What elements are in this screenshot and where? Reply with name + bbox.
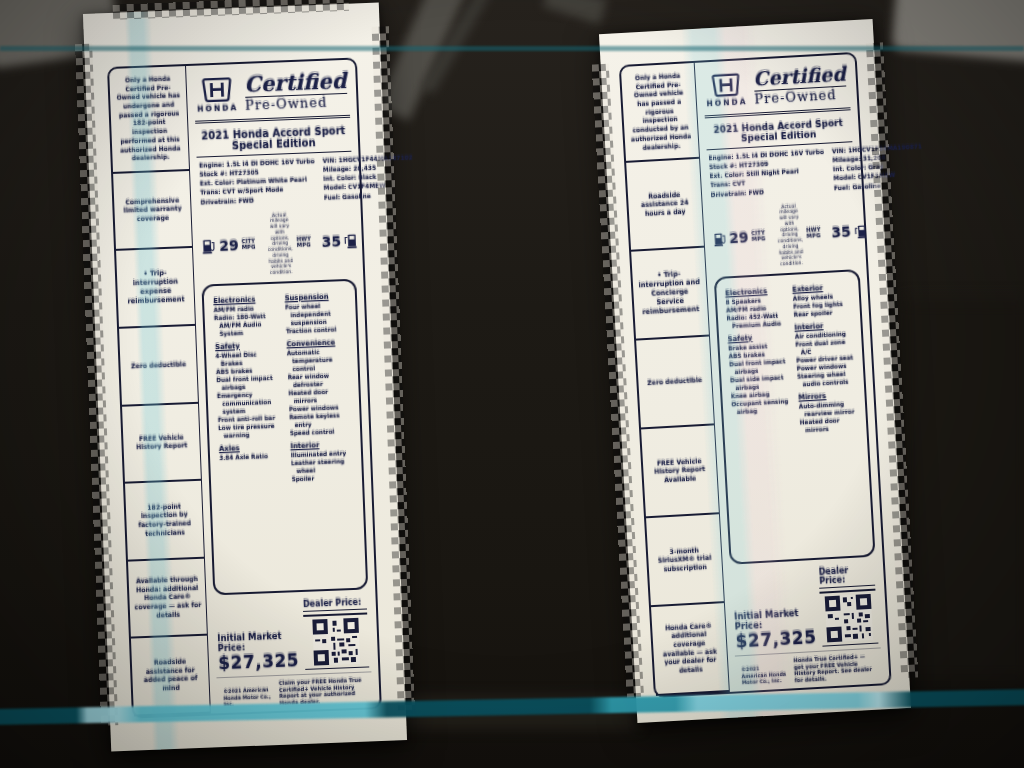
rule-line — [303, 612, 367, 616]
vehicle-info-right: VIN: 1HGCV1F44MA187102Mileage: 28,435Int… — [322, 153, 414, 202]
market-price-value: $27,325 — [218, 650, 300, 673]
hwy-mpg-label: HWY MPG — [806, 227, 829, 240]
desk-streak — [900, 300, 1024, 680]
window-sticker-left: Only a Honda Certified Pre-Owned vehicle… — [83, 3, 407, 752]
benefit-item: 182-point inspection by factory-trained … — [125, 481, 204, 561]
features-column-2: ExteriorAlloy wheelsFront fog lightsRear… — [792, 278, 864, 551]
cable-shadow — [542, 0, 607, 25]
benefit-item: • Trip-interruption expense reimbursemen… — [116, 248, 195, 328]
sticker-main-column: HONDA Certified Pre-Owned 2021 Honda Acc… — [694, 54, 889, 692]
benefit-item: Available through Honda: additional Hond… — [128, 559, 207, 639]
sticker-footer: ©2021 American Honda Motor Co., Inc. Hon… — [734, 647, 882, 691]
footer-claim-text: Honda True Certified+ — get your FREE Ve… — [793, 653, 876, 684]
certified-note: Only a Honda Certified Pre-Owned vehicle… — [621, 63, 699, 163]
vehicle-info-left: Engine: 1.5L I4 DI DOHC 16V TurboStock #… — [199, 157, 316, 207]
epa-fuel-economy: 29 CITY MPG Actual mileage will vary wit… — [709, 197, 859, 277]
benefit-item: FREE Vehicle History Report Available — [641, 425, 718, 518]
benefit-item: Zero deductible — [119, 326, 198, 406]
dealer-price-label: Dealer Price: — [303, 597, 367, 611]
feature-item: 3.84 Axle Ratio — [219, 452, 281, 462]
rule-line — [823, 642, 879, 647]
gas-pump-icon — [344, 232, 359, 251]
benefit-item: Zero deductible — [636, 337, 713, 430]
feature-group-header: Interior — [290, 440, 352, 450]
qr-code — [825, 593, 873, 641]
sticker-main-column: HONDA Certified Pre-Owned 2021 Honda Acc… — [186, 60, 380, 714]
feature-item: Auto-dimming rearview mirror — [799, 400, 857, 419]
honda-wordmark: HONDA — [706, 97, 747, 108]
brand-header: HONDA Certified Pre-Owned — [193, 60, 350, 124]
sticker-border-box: Only a Honda Certified Pre-Owned vehicle… — [107, 57, 382, 718]
features-box: ElectronicsAM/FM radioRadio: 180-Watt AM… — [202, 278, 369, 595]
feature-group-header: Safety — [215, 340, 277, 350]
pricing-block: Initial Market Price: $27,325 Dealer Pri… — [214, 589, 372, 677]
certified-script: Certified — [244, 70, 347, 95]
dealer-price-label: Dealer Price: — [819, 565, 876, 589]
epa-fine-print: Actual mileage will vary with options, d… — [776, 203, 805, 267]
gas-pump-icon — [853, 222, 867, 240]
hwy-mpg-label: HWY MPG — [297, 236, 319, 249]
rule-line — [305, 666, 369, 670]
features-column-1: ElectronicsAM/FM radioRadio: 180-Watt AM… — [213, 291, 286, 586]
feature-item: Low tire pressure warning — [218, 422, 280, 440]
desk-clutter-top-right — [891, 0, 1024, 62]
pricing-block: Initial Market Price: $27,325 Dealer Pri… — [729, 557, 880, 656]
epa-fine-print: Actual mileage will vary with options, d… — [266, 212, 293, 276]
feature-item: Emergency communication system — [217, 390, 279, 416]
honda-h-logo-icon — [709, 71, 742, 99]
feature-item: Automatic temperature control — [287, 348, 349, 374]
features-box: Electronics8 SpeakersAM/FM radioRadio: 4… — [713, 269, 875, 565]
feature-item: Steering wheel audio controls — [797, 370, 855, 389]
vehicle-info: Engine: 1.5L I4 DI DOHC 16V TurboStock #… — [706, 141, 855, 205]
brand-header: HONDA Certified Pre-Owned — [701, 54, 850, 118]
teal-reflection-line — [0, 46, 1024, 51]
benefit-item: • Trip-interruption and Concierge Servic… — [631, 248, 708, 341]
cable-shadow — [376, 0, 470, 121]
feature-group-header: Convenience — [286, 338, 348, 348]
feature-item: Heated door mirrors — [800, 416, 858, 435]
benefit-item: FREE Vehicle History Report — [122, 403, 201, 483]
city-mpg-value: 29 — [729, 229, 749, 246]
epa-fuel-economy: 29 CITY MPG Actual mileage will vary wit… — [199, 206, 356, 284]
hwy-mpg-value: 35 — [831, 224, 851, 241]
benefit-item: Honda Care® additional coverage availabl… — [651, 603, 728, 696]
sticker-border-box: Only a Honda Certified Pre-Owned vehicle… — [619, 52, 892, 698]
feature-item: Radio: 452-Watt Premium Audio — [726, 312, 784, 331]
feature-item: Traction control — [286, 326, 348, 336]
feature-item: Four wheel independent suspension — [285, 302, 347, 328]
feature-item: Speed control — [290, 428, 352, 438]
market-price-value: $27,325 — [735, 627, 817, 651]
benefit-item: 3-month SiriusXM® trial subscription — [646, 514, 723, 607]
benefit-item: Roadside assistance 24 hours a day — [626, 159, 703, 252]
edge-artifact — [113, 0, 349, 20]
vehicle-info-left: Engine: 1.5L I4 DI DOHC 16V TurboStock #… — [708, 148, 826, 200]
city-mpg-value: 29 — [219, 237, 239, 254]
certified-script: Certified — [753, 64, 846, 88]
rule-line — [820, 589, 876, 594]
qr-code — [312, 617, 360, 665]
feature-item: Radio: 180-Watt AM/FM Audio System — [214, 313, 276, 339]
photo-background: Only a Honda Certified Pre-Owned vehicle… — [0, 0, 1024, 768]
feature-group-header: Electronics — [213, 295, 275, 305]
honda-h-logo-icon — [199, 75, 234, 104]
certified-note: Only a Honda Certified Pre-Owned vehicle… — [109, 66, 189, 174]
window-sticker-right: Only a Honda Certified Pre-Owned vehicle… — [599, 19, 911, 723]
benefit-item: Comprehensive limited warranty coverage — [113, 171, 192, 251]
features-column-1: Electronics8 SpeakersAM/FM radioRadio: 4… — [725, 282, 797, 555]
gas-pump-icon — [713, 230, 727, 248]
gas-pump-icon — [202, 237, 217, 256]
feature-group-header: Axles — [219, 442, 281, 452]
feature-item: Spoiler — [291, 473, 353, 483]
city-mpg-label: CITY MPG — [751, 230, 774, 243]
feature-item: Occupant sensing airbag — [731, 398, 789, 417]
features-column-2: SuspensionFour wheel independent suspens… — [284, 288, 357, 583]
honda-wordmark: HONDA — [197, 103, 238, 114]
copyright-text: ©2021 American Honda Motor Co., Inc. — [741, 665, 787, 686]
edge-artifact — [372, 26, 415, 710]
vehicle-info: Engine: 1.5L I4 DI DOHC 16V TurboStock #… — [197, 151, 354, 213]
feature-group-header: Suspension — [284, 292, 346, 302]
vehicle-info-right: VIN: 1HGCV1F34MA190871Mileage: 31,208Int… — [832, 142, 925, 193]
hwy-mpg-value: 35 — [321, 233, 341, 250]
city-mpg-label: CITY MPG — [241, 238, 263, 251]
